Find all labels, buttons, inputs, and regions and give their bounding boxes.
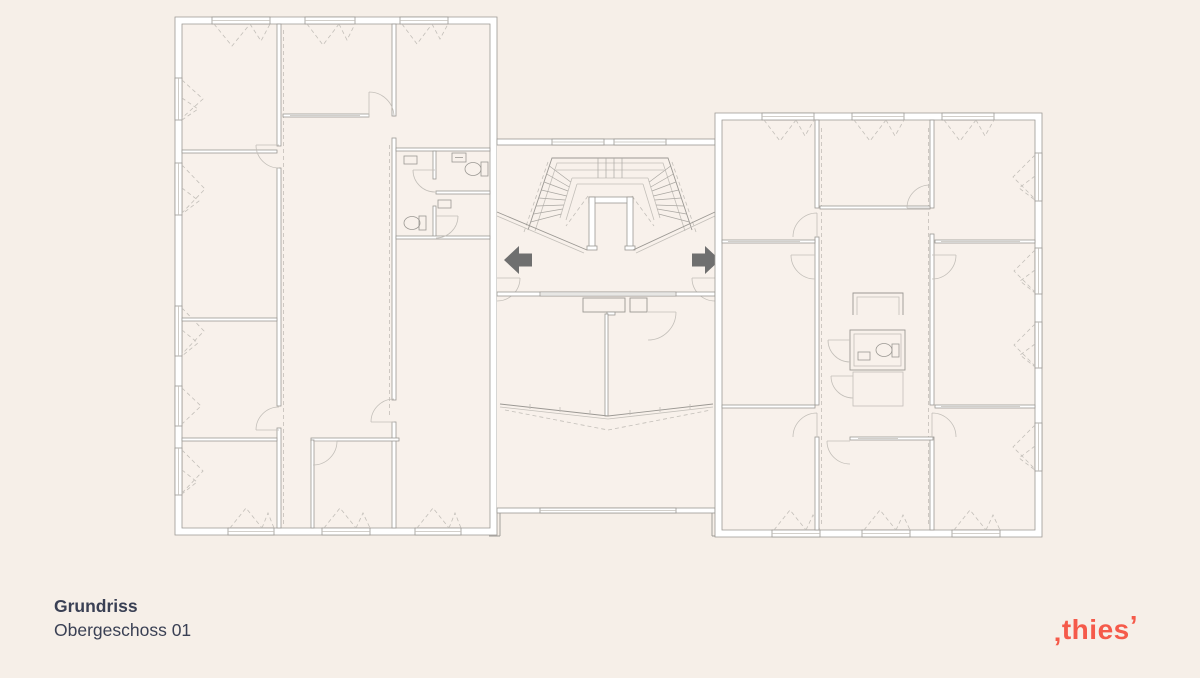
central-stairwell	[489, 139, 723, 536]
floor-plan-drawing	[0, 0, 1200, 678]
logo-leading-mark: ‚	[1054, 616, 1062, 648]
plan-title: Grundriss	[54, 594, 191, 618]
right-wing	[715, 113, 1042, 537]
thies-logo: ‚thies’	[1054, 614, 1138, 646]
left-wing	[175, 17, 497, 535]
logo-trailing-mark: ’	[1130, 610, 1138, 642]
slide	[0, 0, 1200, 678]
plan-caption: Grundriss Obergeschoss 01	[54, 594, 191, 642]
plan-subtitle: Obergeschoss 01	[54, 618, 191, 642]
logo-text: thies	[1062, 614, 1130, 645]
